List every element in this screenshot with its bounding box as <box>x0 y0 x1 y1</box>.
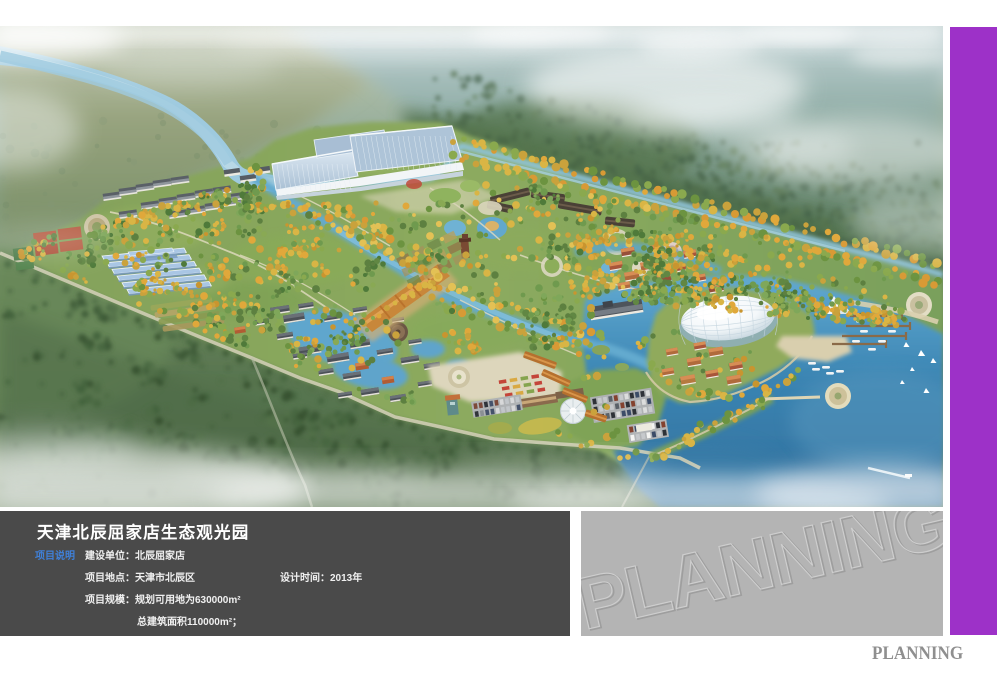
svg-text:总建筑面积110000m²；: 总建筑面积110000m²； <box>137 615 242 628</box>
svg-text:建设单位：北辰屈家店: 建设单位：北辰屈家店 <box>84 549 185 562</box>
svg-text:天津北辰屈家店生态观光园: 天津北辰屈家店生态观光园 <box>37 522 249 542</box>
svg-text:设计时间：2013年: 设计时间：2013年 <box>280 571 362 584</box>
svg-text:PLANNING: PLANNING <box>872 642 963 663</box>
svg-text:项目规模：规划可用地为630000m²: 项目规模：规划可用地为630000m² <box>85 593 241 606</box>
svg-text:项目说明: 项目说明 <box>35 549 75 562</box>
svg-text:项目地点：天津市北辰区: 项目地点：天津市北辰区 <box>85 571 195 584</box>
